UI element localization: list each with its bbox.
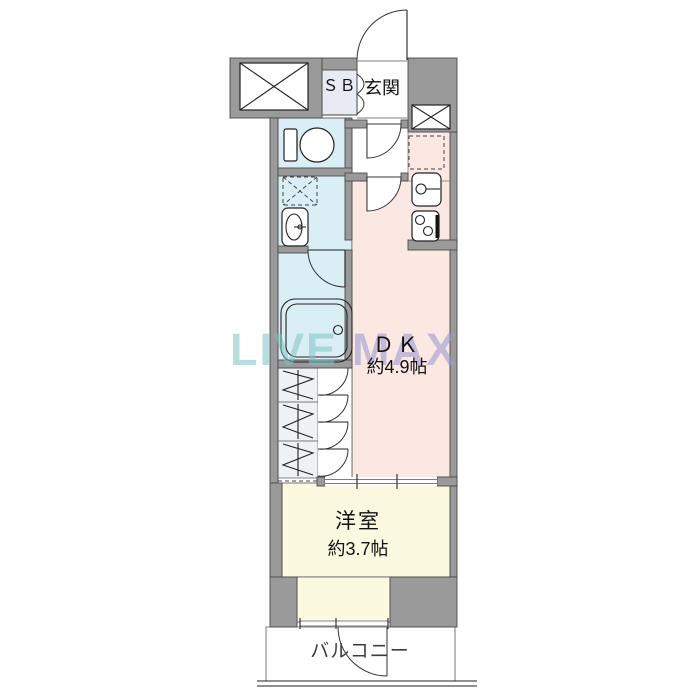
wall-slider-right-stub [437, 477, 457, 486]
shaft-crossed-box [240, 63, 308, 110]
western-room-alcove [297, 577, 390, 622]
wall-room-bottom-right-block [390, 577, 457, 627]
pipe-space-crossed-box [412, 105, 450, 129]
kitchen-sink [412, 173, 441, 206]
western-room-size-label: 約3.7帖 [300, 540, 416, 560]
balcony-label: バルコニー [300, 642, 420, 663]
western-room-label: 洋室 [300, 510, 416, 533]
wall-room-bottom-left-block [270, 577, 297, 627]
wall-slider-left-stub [317, 477, 325, 486]
entrance-label: 玄関 [355, 79, 409, 99]
floor-plan: LIVEMAX ＳＢ 玄関 ＤＫ 約4.9帖 洋室 約3.7帖 バルコニー [0, 0, 700, 700]
wall-room-left [270, 483, 282, 577]
wall-top-band [322, 58, 357, 70]
shoe-box-label: ＳＢ [320, 78, 359, 96]
wall-door1-stub-right [401, 120, 408, 128]
kitchen-stove [412, 211, 439, 241]
wall-right [450, 132, 457, 485]
wall-room-right [450, 486, 457, 577]
wall-toilet-divider [278, 168, 352, 176]
wall-door2-stub-right [401, 173, 408, 181]
wall-left [270, 118, 278, 483]
dining-kitchen-label: ＤＫ [340, 334, 454, 357]
dining-kitchen-size-label: 約4.9帖 [340, 358, 454, 378]
wall-bath-divider [278, 246, 308, 253]
toilet [284, 128, 334, 162]
wall-door2-stub-left [345, 173, 367, 181]
closet-door-strip [318, 368, 352, 478]
wash-basin [282, 208, 308, 246]
wall-door1-stub-left [345, 120, 367, 128]
